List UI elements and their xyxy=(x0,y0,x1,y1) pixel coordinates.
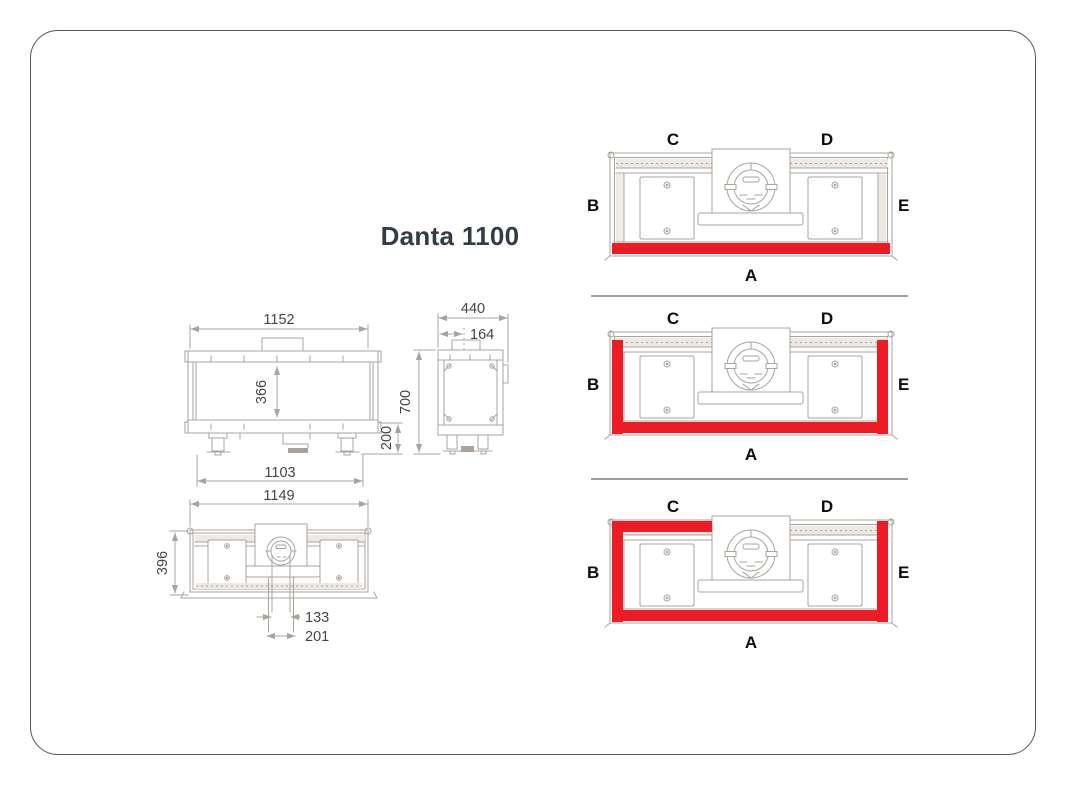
top-view-drawing: 1149 396 133 201 xyxy=(155,488,377,645)
side-label-b: B xyxy=(587,563,599,582)
side-label-a: A xyxy=(745,633,757,652)
side-label-d: D xyxy=(821,130,833,149)
glazing-variant-2-diagram: C D B E A xyxy=(580,304,920,474)
side-label-e: E xyxy=(898,563,909,582)
side-label-b: B xyxy=(587,375,599,394)
highlight-side-e xyxy=(877,340,888,434)
dim-top-overall-width: 1149 xyxy=(263,488,294,504)
dim-side-flue-offset: 164 xyxy=(470,327,494,343)
glazing-variant-1-diagram: C D B E A xyxy=(580,125,920,295)
dim-side-overall-height: 700 xyxy=(398,390,414,414)
dim-top-overall-depth: 396 xyxy=(155,551,171,575)
dim-top-flue-offset-inner: 133 xyxy=(305,610,329,626)
side-label-e: E xyxy=(898,375,909,394)
dim-top-flue-offset-outer: 201 xyxy=(305,629,329,645)
side-label-a: A xyxy=(745,445,757,464)
dim-side-overall-depth: 440 xyxy=(461,301,485,317)
glazing-variant-1-highlights xyxy=(612,243,890,254)
side-label-c: C xyxy=(667,130,679,149)
variant-divider-1 xyxy=(591,295,908,297)
front-view-drawing: 1152 366 200 1103 xyxy=(185,312,402,486)
side-label-c: C xyxy=(667,497,679,516)
side-label-b: B xyxy=(587,196,599,215)
highlight-side-a xyxy=(612,243,890,254)
side-view-drawing: 440 164 700 xyxy=(398,301,508,454)
highlight-side-b xyxy=(612,521,623,622)
side-label-e: E xyxy=(898,196,909,215)
highlight-side-a xyxy=(612,610,888,621)
product-title: Danta 1100 xyxy=(330,221,570,252)
highlight-side-c xyxy=(612,521,712,532)
variant-divider-2 xyxy=(591,478,908,480)
side-label-a: A xyxy=(745,266,757,285)
dim-front-glass-height: 366 xyxy=(254,380,270,404)
glazing-variant-3-diagram: C D B E A xyxy=(580,492,920,662)
dim-front-overall-width: 1152 xyxy=(263,312,294,328)
highlight-side-b xyxy=(612,340,623,434)
highlight-side-a xyxy=(612,422,888,433)
highlight-side-e xyxy=(877,521,888,622)
side-label-d: D xyxy=(821,497,833,516)
dim-front-lower-width: 1103 xyxy=(264,465,295,481)
side-label-c: C xyxy=(667,309,679,328)
dim-front-base-height: 200 xyxy=(379,426,395,450)
dimension-drawings: 1152 366 200 1103 440 1 xyxy=(150,296,545,661)
side-label-d: D xyxy=(821,309,833,328)
